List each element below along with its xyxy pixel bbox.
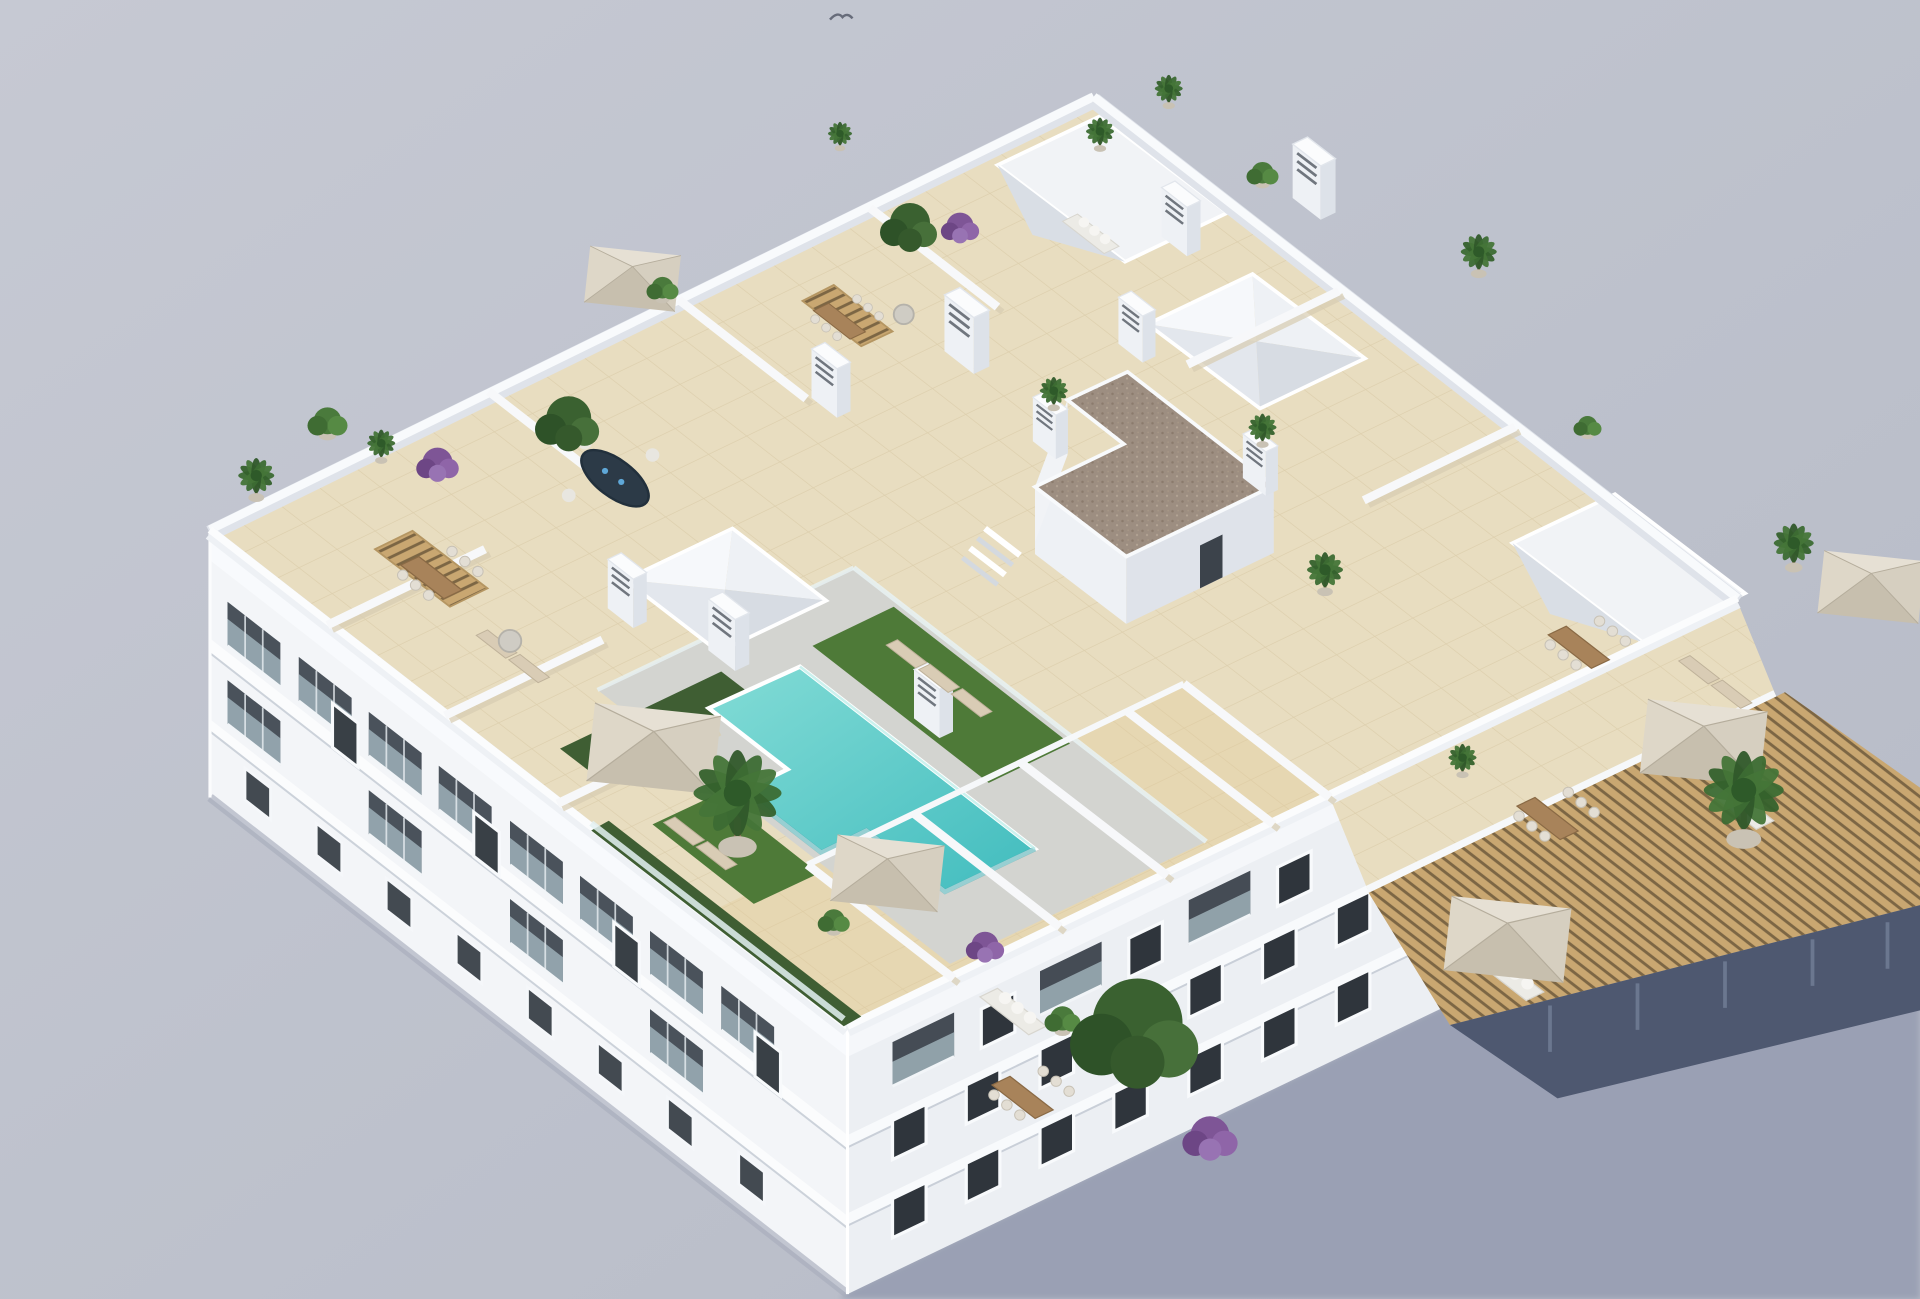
parasol: [830, 835, 944, 913]
parasol: [1444, 896, 1572, 983]
table-glassware: [602, 468, 608, 474]
chair: [562, 489, 576, 502]
render-stage: [0, 0, 1920, 1299]
chair: [646, 448, 660, 461]
table-glassware: [618, 479, 624, 485]
round-table: [499, 630, 522, 652]
parasol: [1817, 551, 1920, 624]
architectural-render: [0, 0, 1920, 1299]
round-table: [894, 305, 914, 325]
parasol: [587, 703, 722, 794]
